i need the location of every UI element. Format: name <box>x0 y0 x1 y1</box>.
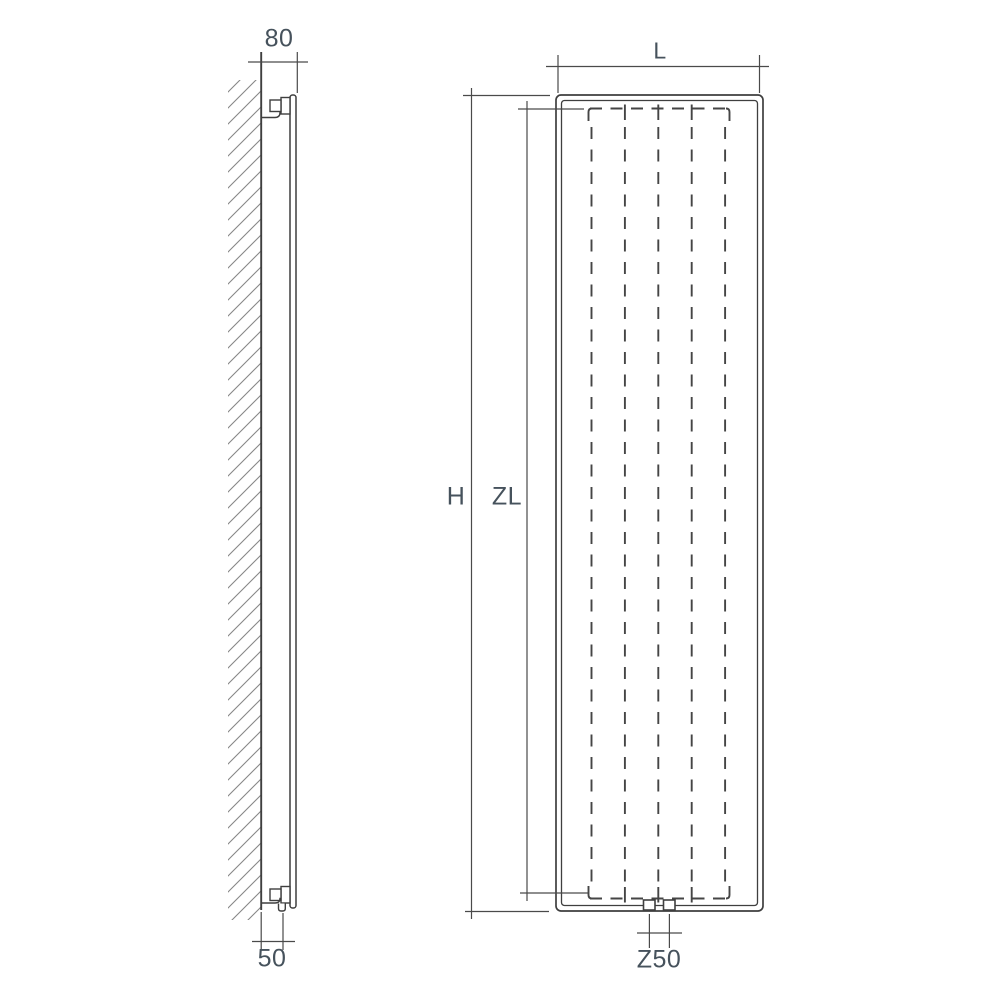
dim-label-80: 80 <box>265 25 294 54</box>
dim-label-50: 50 <box>258 945 287 974</box>
dim-label-H: H <box>447 483 466 512</box>
mounting-bracket-bottom <box>262 887 290 912</box>
panel-profile <box>290 95 296 908</box>
panel-outline-outer <box>556 95 763 911</box>
dim-Z50 <box>637 914 682 948</box>
dim-label-L: L <box>653 38 666 65</box>
wall-hatch <box>228 80 261 920</box>
radiator-dimension-diagram: 80 L H ZL 50 Z50 <box>0 0 1000 1000</box>
mounting-bracket-top <box>262 98 290 118</box>
side-view <box>228 52 308 950</box>
dim-label-ZL: ZL <box>492 483 522 512</box>
dim-label-Z50: Z50 <box>637 946 682 975</box>
